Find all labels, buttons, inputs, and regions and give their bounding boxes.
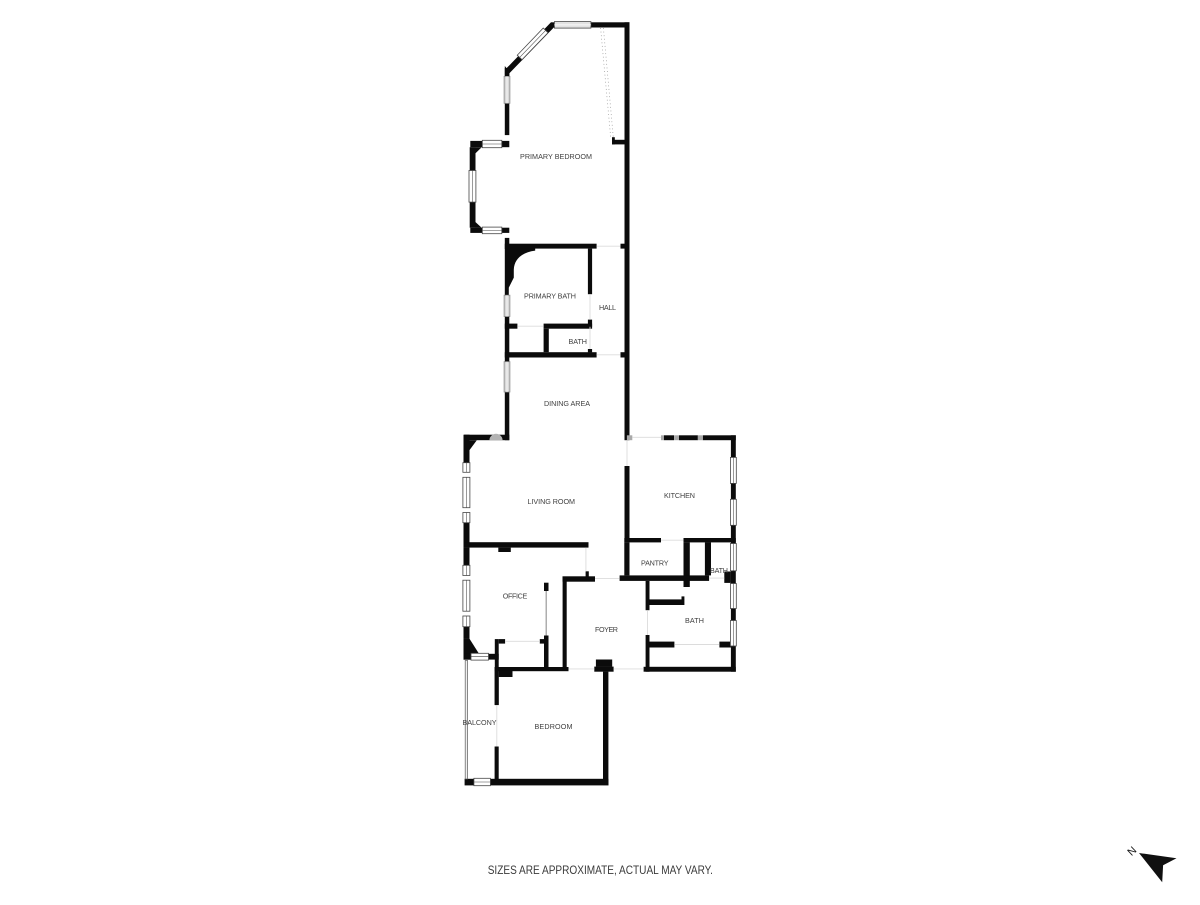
svg-text:BATH: BATH <box>569 337 588 346</box>
svg-text:OFFICE: OFFICE <box>503 591 528 600</box>
svg-text:FOYER: FOYER <box>595 625 618 634</box>
svg-text:PRIMARY BATH: PRIMARY BATH <box>524 292 576 301</box>
svg-text:BATH: BATH <box>710 566 728 575</box>
svg-text:PANTRY: PANTRY <box>641 558 669 567</box>
svg-text:BEDROOM: BEDROOM <box>535 722 573 731</box>
svg-text:BATH: BATH <box>685 616 704 625</box>
svg-text:BALCONY: BALCONY <box>463 718 497 727</box>
svg-text:LIVING ROOM: LIVING ROOM <box>528 497 576 506</box>
svg-text:HALL: HALL <box>599 303 616 312</box>
svg-text:SIZES ARE APPROXIMATE, ACTUAL: SIZES ARE APPROXIMATE, ACTUAL MAY VARY. <box>488 864 713 877</box>
svg-text:PRIMARY BEDROOM: PRIMARY BEDROOM <box>520 152 592 161</box>
svg-text:DINING AREA: DINING AREA <box>544 399 590 408</box>
svg-text:KITCHEN: KITCHEN <box>664 491 695 500</box>
